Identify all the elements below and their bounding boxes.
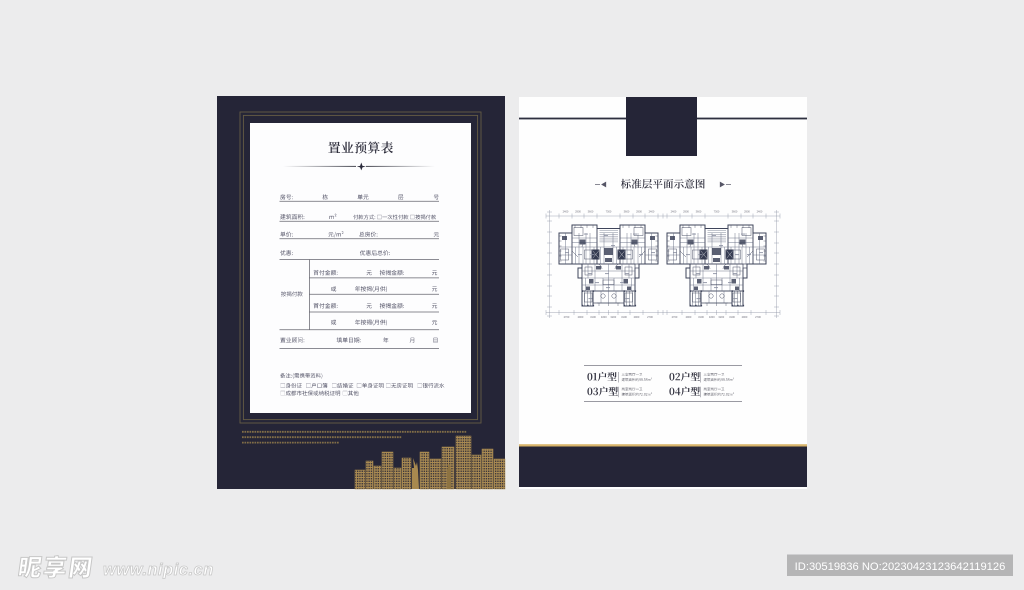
svg-text:3600: 3600 [588,210,594,214]
svg-text:2700: 2700 [755,315,761,319]
svg-text:3600: 3600 [624,210,630,214]
svg-text:2900: 2900 [742,315,748,319]
svg-text:2900: 2900 [683,210,689,214]
svg-text:2900: 2900 [636,210,642,214]
svg-text:3200: 3200 [709,315,715,319]
svg-text:2400: 2400 [757,210,763,214]
svg-text:2400: 2400 [563,210,569,214]
svg-text:3100: 3100 [698,315,704,319]
svg-text:2700: 2700 [672,315,678,319]
svg-text:2400: 2400 [671,210,677,214]
svg-text:3600: 3600 [732,210,738,214]
svg-text:2900: 2900 [578,315,584,319]
svg-text:2400: 2400 [649,210,655,214]
svg-text:www.nipic.cn: www.nipic.cn [103,561,214,579]
svg-text:3200: 3200 [601,315,607,319]
svg-text:7300: 7300 [714,210,720,214]
svg-text:2700: 2700 [564,315,570,319]
svg-text:2900: 2900 [686,315,692,319]
svg-text:2700: 2700 [647,315,653,319]
svg-text:3200: 3200 [610,315,616,319]
svg-text:2900: 2900 [575,210,581,214]
svg-text:2900: 2900 [634,315,640,319]
svg-text:3100: 3100 [621,315,627,319]
svg-text:ID:30519836 NO:202304231236421: ID:30519836 NO:20230423123642119126 [795,561,1006,573]
svg-text:3200: 3200 [718,315,724,319]
svg-text:3100: 3100 [729,315,735,319]
svg-text:7300: 7300 [606,210,612,214]
svg-text:3100: 3100 [590,315,596,319]
svg-text:2900: 2900 [744,210,750,214]
svg-text:3600: 3600 [696,210,702,214]
